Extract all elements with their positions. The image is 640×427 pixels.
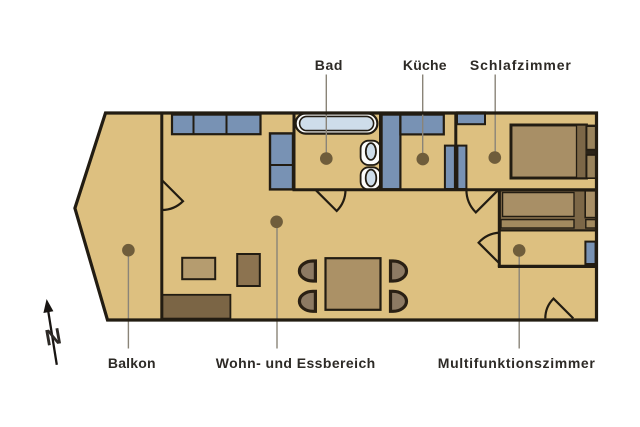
svg-text:Bad: Bad	[315, 57, 343, 73]
svg-text:Wohn- und Essbereich: Wohn- und Essbereich	[216, 355, 376, 371]
svg-text:N: N	[43, 323, 63, 350]
svg-text:Multifunktionszimmer: Multifunktionszimmer	[438, 355, 596, 371]
svg-text:Schlafzimmer: Schlafzimmer	[470, 57, 572, 73]
svg-text:Küche: Küche	[403, 57, 447, 73]
svg-text:Balkon: Balkon	[108, 355, 156, 371]
